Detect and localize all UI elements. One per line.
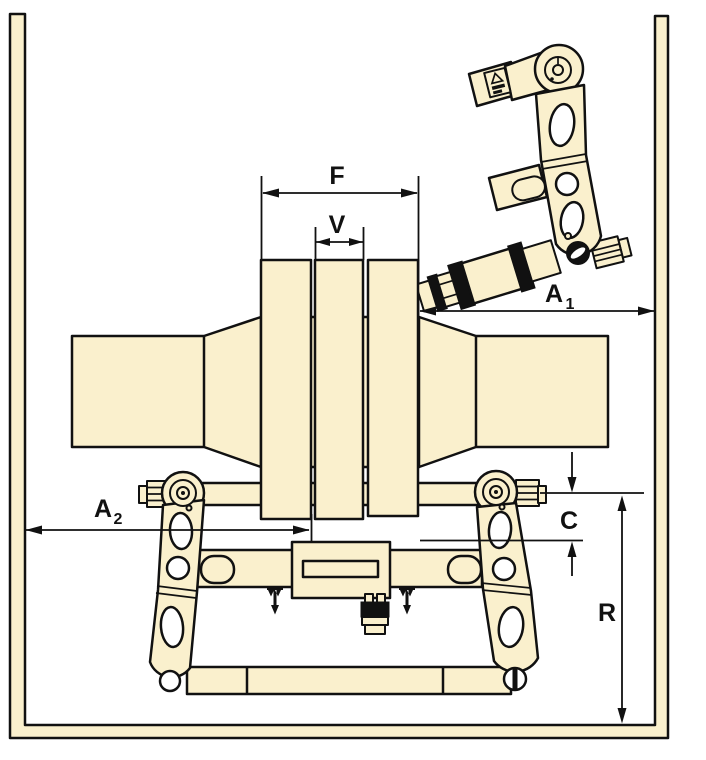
dim-label-a1: A: [545, 280, 563, 308]
dimension-f: F: [262, 162, 418, 198]
adjuster-round-hole: [556, 173, 578, 195]
disc-right: [368, 260, 418, 516]
dim-label-f: F: [329, 162, 344, 190]
right-pivot-dot: [494, 490, 498, 494]
left-round-hole: [167, 557, 189, 579]
worm-screw-dot: [550, 77, 554, 81]
arrowhead-v-left: [316, 238, 330, 246]
left-oval-hole-1: [169, 512, 193, 549]
left-grease-dot: [187, 506, 192, 511]
arrowhead-a2-right: [293, 526, 310, 535]
left-bottom-hole: [160, 671, 180, 691]
diagram-canvas: F V A 1 A 2 C R: [0, 0, 706, 760]
left-lever-arm: [139, 472, 204, 691]
arrowhead-f-left: [262, 189, 279, 198]
right-clevis-tab: [448, 556, 481, 583]
left-clevis-tab: [201, 556, 234, 583]
right-bolt-cap: [538, 486, 546, 503]
arrowhead-c-up: [568, 542, 577, 558]
disc-pack: [261, 260, 418, 519]
disc-middle: [315, 260, 363, 519]
air-fitting-cap: [365, 625, 385, 634]
disc-left: [261, 260, 311, 519]
air-fitting-body: [362, 617, 388, 625]
dimension-r: R: [598, 496, 627, 724]
dim-label-c: C: [560, 507, 578, 535]
arrowhead-a2-left: [26, 526, 43, 535]
warning-label: [484, 68, 510, 97]
axle-shaft-left: [72, 317, 261, 467]
dim-label-r: R: [598, 599, 616, 627]
right-lever-arm: [475, 471, 546, 690]
left-pivot-dot: [181, 491, 185, 495]
dim-label-a2: A: [94, 495, 112, 523]
bottom-crossbar: [187, 667, 511, 694]
worm-screw-inner: [553, 65, 563, 75]
dimension-v: V: [316, 211, 363, 246]
arrowhead-r-top: [618, 496, 627, 512]
arrowhead-a1-right: [638, 307, 655, 316]
clevis-dot: [565, 233, 571, 239]
air-fitting-collar: [361, 602, 389, 617]
left-bolt-cap: [139, 486, 147, 503]
dim-label-a2-sub: 2: [114, 511, 123, 528]
dim-label-a1-sub: 1: [566, 296, 575, 313]
air-fitting: [361, 594, 389, 634]
dim-label-v: V: [329, 211, 346, 239]
arrowhead-f-right: [401, 189, 418, 198]
cotter-pin-right: [399, 587, 415, 615]
technical-diagram: F V A 1 A 2 C R: [0, 0, 706, 760]
right-grease-dot: [500, 505, 505, 510]
right-round-hole: [493, 558, 515, 580]
cotter-pin-left: [267, 587, 283, 615]
arrowhead-r-bottom: [618, 708, 627, 724]
slack-adjuster-assembly: [413, 45, 633, 321]
axle-shaft-right: [419, 317, 608, 467]
center-box-slot: [303, 561, 378, 577]
arrowhead-c-down: [568, 477, 577, 493]
arrowhead-v-right: [349, 238, 363, 246]
